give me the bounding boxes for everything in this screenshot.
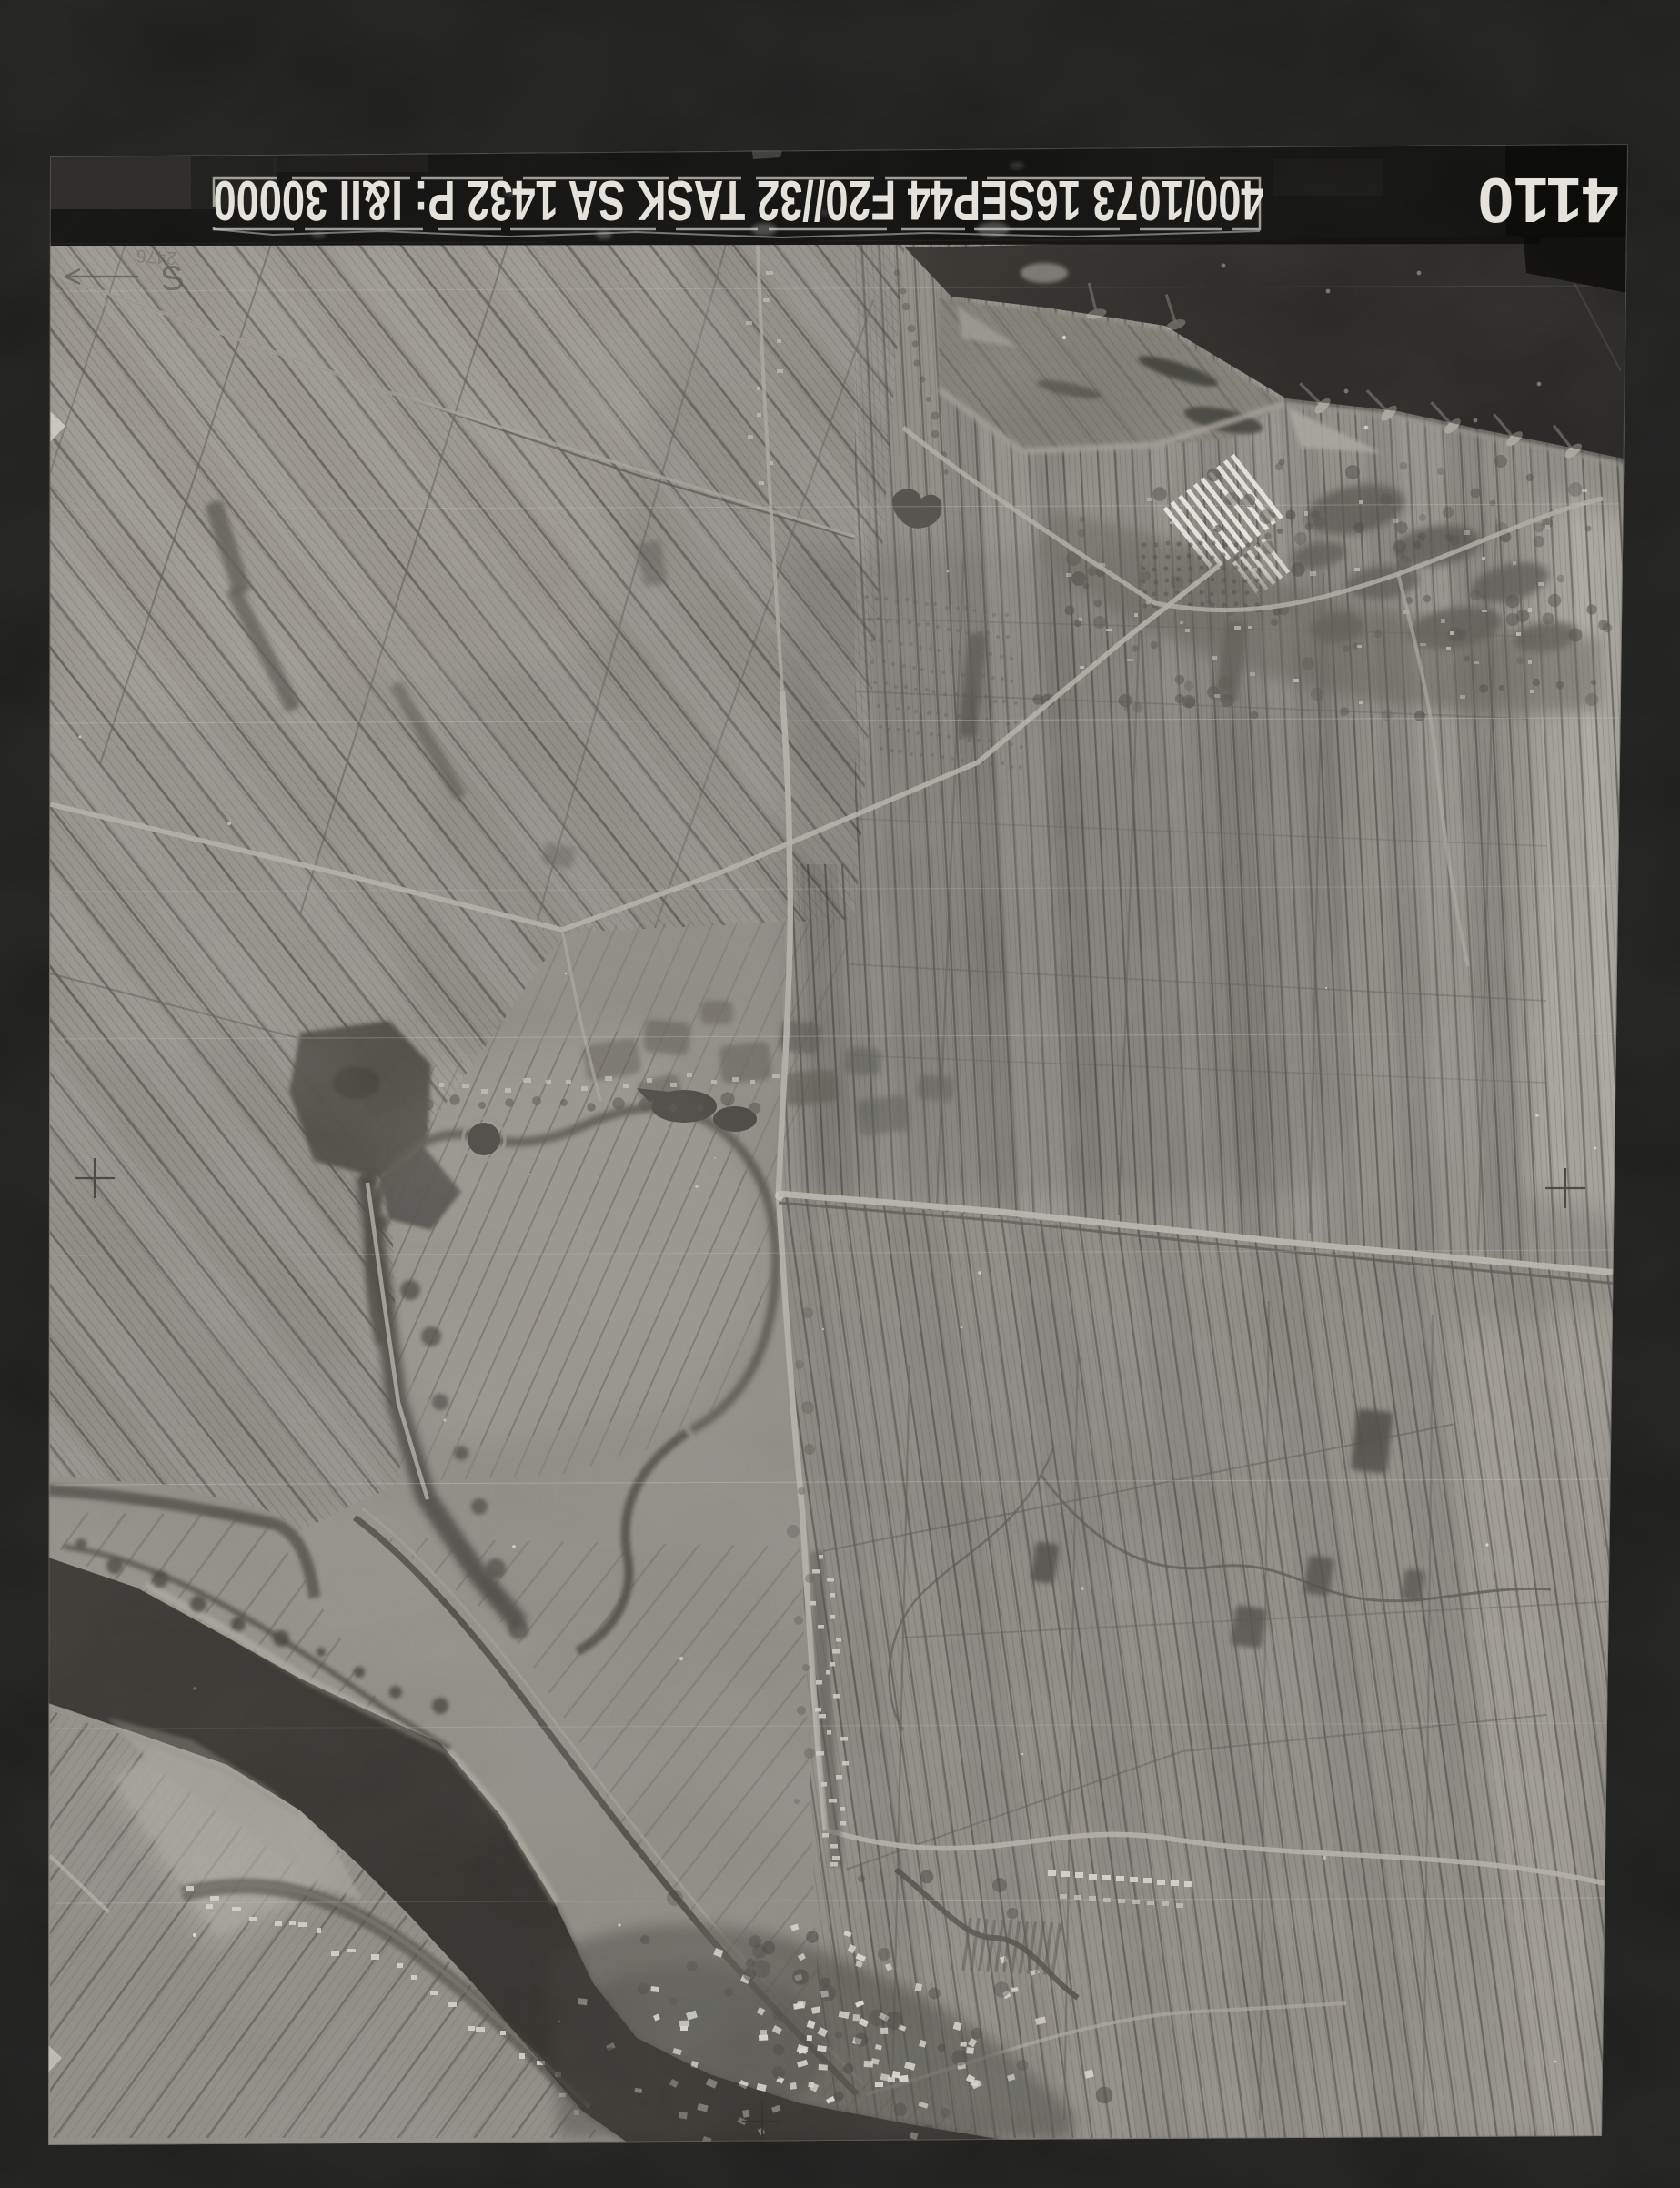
svg-text:4110: 4110	[1478, 165, 1619, 236]
svg-text:400/1073 16SEP44 F20//32 TASK: 400/1073 16SEP44 F20//32 TASK SA 1432 P:…	[214, 168, 1264, 231]
